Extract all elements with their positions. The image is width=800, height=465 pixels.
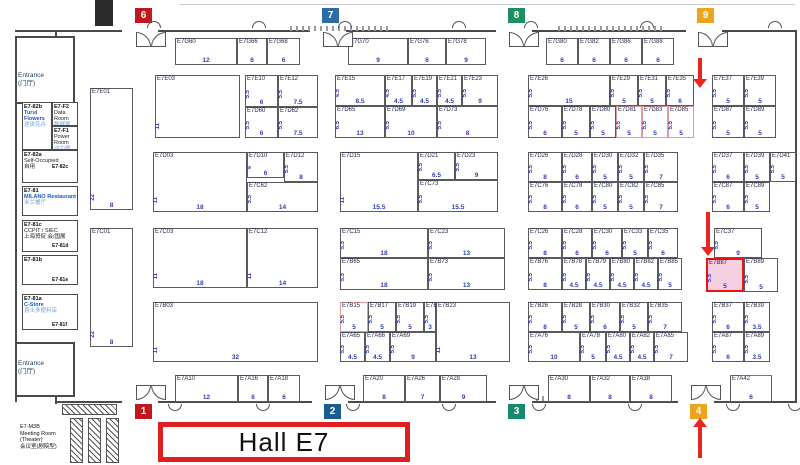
booth-E7B37[interactable]: E7B375.56 — [712, 302, 744, 332]
booth-width: 6 — [643, 57, 673, 64]
booth-E7G86[interactable]: E7G866 — [610, 38, 642, 65]
booth-E7E17[interactable]: E7E174.54.5 — [385, 75, 412, 106]
booth-E7C26[interactable]: E7C265.58 — [528, 228, 562, 258]
booth-E7D10[interactable]: E7D1046 — [247, 152, 284, 178]
booth-width: 12 — [176, 394, 237, 401]
booth-E7C82[interactable]: E7C825.55 — [618, 182, 644, 212]
booth-width: 5 — [745, 130, 775, 137]
theater-seating — [88, 418, 101, 463]
booth-depth: 5.5 — [246, 121, 251, 129]
booth-E7C12[interactable]: E7C121114 — [247, 228, 318, 288]
booth-width: 8 — [438, 130, 497, 137]
booth-width: 8 — [529, 204, 561, 211]
outer-building-line — [180, 4, 795, 5]
gate-door-icon — [713, 32, 728, 47]
booth-E7B89[interactable]: E7B895.55 — [744, 258, 778, 292]
booth-depth: 5.5 — [529, 195, 534, 203]
booth-width: 5 — [617, 130, 641, 137]
booth-E7G60[interactable]: E7G6012 — [175, 38, 237, 65]
booth-id: E7E01 — [92, 89, 110, 95]
booth-depth: 5.5 — [713, 89, 718, 97]
booth-depth: 5.5 — [279, 90, 284, 98]
booth-width: 8 — [591, 394, 629, 401]
booth-E7A76[interactable]: E7A765.510 — [528, 332, 580, 362]
booth-E7A89[interactable]: E7A895.53.5 — [744, 332, 770, 362]
booth-E7A10[interactable]: E7A1012 — [175, 375, 238, 402]
room-label: Data Room — [54, 110, 76, 122]
booth-E7C80[interactable]: E7C805.55 — [592, 182, 618, 212]
booth-E7E26[interactable]: E7E265.515 — [528, 75, 610, 106]
booth-width: 15.5 — [419, 204, 497, 211]
booth-id: E7C62 — [249, 183, 267, 189]
booth-E7C28[interactable]: E7C285.56 — [562, 228, 592, 258]
booth-width: 5 — [639, 98, 665, 105]
booth-width: 3.5 — [745, 324, 769, 331]
booth-E7A78[interactable]: E7A785.55 — [580, 332, 606, 362]
booth-E7B78[interactable]: E7B785.54.5 — [562, 258, 586, 290]
booth-E7D69[interactable]: E7D695.510 — [385, 106, 437, 138]
gate-door-icon — [151, 32, 166, 47]
booth-id: E7D41 — [772, 153, 790, 159]
room-e7-81: E7-81MILANO Restaurant米兰餐厅 — [22, 186, 78, 216]
booth-width: 4.5 — [611, 282, 633, 289]
booth-depth: 5.5 — [529, 89, 534, 97]
booth-depth: 5.5 — [529, 345, 534, 353]
booth-E7B23[interactable]: E7B231113 — [436, 302, 510, 362]
booth-width: 6 — [246, 99, 277, 106]
booth-E7D65[interactable]: E7D656.513 — [335, 106, 385, 138]
booth-E7C78[interactable]: E7C785.56 — [562, 182, 592, 212]
booth-id: E7C33 — [624, 229, 642, 235]
booth-width: 6 — [529, 130, 561, 137]
booth-E7B32[interactable]: E7B325.55 — [620, 302, 648, 332]
booth-depth: 5.5 — [529, 315, 534, 323]
booth-width: 18 — [154, 280, 246, 287]
booth-width: 6 — [547, 57, 577, 64]
meeting-room-label: E7-M3BMeeting Room(Theater)会议室(剧院型) — [20, 424, 57, 450]
booth-id: E7D81 — [618, 107, 636, 113]
booth-width: 18 — [341, 282, 427, 289]
arrow-head — [693, 418, 707, 427]
booth-id: E7C73 — [420, 181, 438, 187]
booth-E7C03[interactable]: E7C031118 — [153, 228, 247, 288]
booth-E7A85[interactable]: E7A855.57 — [654, 332, 688, 362]
booth-E7C30[interactable]: E7C305.56 — [592, 228, 622, 258]
booth-depth: 5.5 — [659, 273, 664, 281]
booth-depth: 5.5 — [581, 345, 586, 353]
booth-E7A38[interactable]: E7A388 — [630, 375, 672, 402]
booth-E7A82[interactable]: E7A825.54.5 — [630, 332, 654, 362]
booth-E7B21[interactable]: E7B215.53 — [424, 302, 436, 332]
booth-E7B19[interactable]: E7B195.55 — [396, 302, 424, 332]
booth-width: 6 — [246, 130, 277, 137]
booth-E7G88[interactable]: E7G886 — [642, 38, 674, 65]
booth-id: E7D37 — [714, 153, 732, 159]
booth-E7A28[interactable]: E7A289 — [440, 375, 487, 402]
booth-E7C37[interactable]: E7C375.59 — [714, 228, 762, 258]
booth-E7E03[interactable]: E7E0311 — [155, 75, 240, 138]
booth-width: 4.5 — [563, 282, 585, 289]
booth-id: E7A18 — [270, 376, 288, 382]
corner-wall — [15, 30, 57, 32]
booth-depth: 5.5 — [713, 315, 718, 323]
booth-id: E7E35 — [668, 76, 686, 82]
booth-width: 6 — [593, 250, 621, 257]
booth-id: E7B23 — [438, 303, 456, 309]
booth-width: 5 — [713, 98, 743, 105]
arrow-shaft — [706, 212, 710, 248]
booth-E7B87[interactable]: E7B875.55 — [706, 258, 744, 292]
room-label-e7-81e: E7-81e — [52, 277, 68, 283]
booth-E7C33[interactable]: E7C335.55 — [622, 228, 648, 258]
booth-depth: 5.5 — [279, 121, 284, 129]
booth-id: E7B65 — [342, 259, 360, 265]
booth-id: E7B73 — [430, 259, 448, 265]
booth-E7C76[interactable]: E7C765.58 — [528, 182, 562, 212]
booth-E7B26[interactable]: E7B265.58 — [528, 302, 562, 332]
top-wall — [55, 30, 122, 32]
booth-depth: 11 — [341, 197, 346, 203]
booth-E7B15[interactable]: E7B155.55 — [340, 302, 368, 332]
booth-width: 6 — [563, 250, 591, 257]
booth-E7G68[interactable]: E7G686 — [267, 38, 300, 65]
booth-width: 15 — [529, 98, 609, 105]
booth-depth: 22 — [91, 331, 96, 338]
booth-E7E10[interactable]: E7E105.56 — [245, 75, 278, 107]
booth-width: 9 — [349, 57, 407, 64]
booth-id: E7D73 — [439, 107, 457, 113]
booth-width: 6 — [713, 204, 743, 211]
booth-id: E7B28 — [564, 303, 582, 309]
booth-id: E7C01 — [92, 229, 110, 235]
booth-E7G70[interactable]: E7G709 — [348, 38, 408, 65]
booth-width: 10 — [386, 130, 436, 137]
booth-depth: 5.5 — [669, 121, 674, 129]
booth-E7D30[interactable]: E7D305.55 — [592, 152, 618, 182]
booth-E7C87[interactable]: E7C875.56 — [712, 182, 744, 212]
booth-E7B65[interactable]: E7B655.518 — [340, 258, 428, 290]
booth-E7D80[interactable]: E7D805.55 — [590, 106, 616, 138]
booth-E7C23[interactable]: E7C235.513 — [428, 228, 505, 258]
booth-E7D73[interactable]: E7D735.58 — [437, 106, 498, 138]
booth-depth: 5.5 — [591, 121, 596, 129]
top-wall — [722, 30, 797, 32]
booth-E7E15[interactable]: E7E154.58.5 — [335, 75, 385, 106]
booth-width: 5 — [593, 204, 617, 211]
booth-depth: 6.5 — [336, 121, 341, 129]
booth-depth: 5.5 — [285, 165, 290, 173]
booth-E7B76[interactable]: E7B765.58 — [528, 258, 562, 290]
booth-width: 8.5 — [336, 98, 384, 105]
booth-E7E39[interactable]: E7E395.55 — [744, 75, 776, 106]
room-label: 上海贸促 会/国展 — [24, 234, 76, 240]
booth-depth: 5.5 — [619, 195, 624, 203]
booth-width: 6 — [239, 394, 267, 401]
booth-E7D81[interactable]: E7D815.55 — [616, 106, 642, 138]
booth-width: 6 — [248, 170, 283, 177]
booth-E7A20[interactable]: E7A208 — [363, 375, 405, 402]
booth-E7D28[interactable]: E7D285.56 — [562, 152, 592, 182]
booth-E7C62[interactable]: E7C625.514 — [247, 182, 318, 212]
wall-block — [95, 0, 113, 26]
booth-width: 5 — [619, 174, 643, 181]
booth-width: 6.5 — [419, 172, 454, 179]
booth-width: 14 — [248, 280, 317, 287]
booth-width: 6 — [579, 57, 609, 64]
booth-E7D78[interactable]: E7D785.55 — [562, 106, 590, 138]
booth-E7A18[interactable]: E7A186 — [268, 375, 300, 402]
booth-E7G82[interactable]: E7G826 — [578, 38, 610, 65]
booth-E7A30[interactable]: E7A308 — [548, 375, 590, 402]
booth-E7B85[interactable]: E7B855.55 — [658, 258, 682, 290]
booth-id: E7A66 — [367, 333, 385, 339]
booth-E7C01[interactable]: E7C01228 — [90, 228, 133, 347]
booth-E7E23[interactable]: E7E235.59 — [462, 75, 498, 106]
door-arc-icon — [338, 21, 352, 28]
booth-E7B73[interactable]: E7B735.513 — [428, 258, 505, 290]
booth-width: 5 — [745, 284, 777, 291]
booth-E7G78[interactable]: E7G789 — [446, 38, 486, 65]
booth-depth: 5.5 — [639, 89, 644, 97]
booth-width: 4.5 — [635, 282, 657, 289]
booth-depth: 5.5 — [645, 165, 650, 173]
booth-depth: 5.5 — [623, 241, 628, 249]
booth-E7B28[interactable]: E7B285.55 — [562, 302, 590, 332]
booth-depth: 5.5 — [655, 345, 660, 353]
booth-depth: 5.5 — [611, 273, 616, 281]
gate-badge-1: 1 — [135, 404, 152, 419]
booth-id: E7C37 — [716, 229, 734, 235]
booth-width: 15.5 — [341, 204, 417, 211]
booth-E7A42[interactable]: E7A426 — [730, 375, 772, 402]
booth-depth: 5.5 — [708, 274, 713, 282]
booth-id: E7D28 — [564, 153, 582, 159]
booth-E7D21[interactable]: E7D215.56.5 — [418, 152, 455, 180]
booth-width: 4.5 — [631, 354, 653, 361]
booth-E7A65[interactable]: E7A655.54.5 — [340, 332, 365, 362]
booth-E7D83[interactable]: E7D835.55 — [642, 106, 668, 138]
door-arc-icon — [256, 404, 270, 411]
gate-door-icon — [151, 385, 166, 400]
booth-E7E37[interactable]: E7E375.55 — [712, 75, 744, 106]
booth-depth: 5.5 — [649, 241, 654, 249]
booth-E7C15[interactable]: E7C155.518 — [340, 228, 428, 258]
booth-E7E29[interactable]: E7E295.55 — [610, 75, 638, 106]
booth-E7B80[interactable]: E7B805.54.5 — [610, 258, 634, 290]
booth-E7D85[interactable]: E7D855.55 — [668, 106, 694, 138]
booth-E7C85[interactable]: E7C855.57 — [644, 182, 678, 212]
booth-depth: 5.5 — [649, 315, 654, 323]
room-e7-f1: E7-F1Power Room动力房 — [52, 126, 78, 150]
booth-depth: 5.5 — [591, 315, 596, 323]
hall-title: Hall E7 — [158, 422, 410, 462]
booth-id: E7E26 — [530, 76, 548, 82]
booth-width: 4.5 — [587, 282, 609, 289]
booth-E7E21[interactable]: E7E215.54.5 — [437, 75, 462, 106]
booth-id: E7D39 — [746, 153, 764, 159]
gate-door-icon — [340, 385, 355, 400]
booth-id: E7E37 — [714, 76, 732, 82]
booth-width: 7.5 — [279, 130, 317, 137]
booth-id: E7E15 — [337, 76, 355, 82]
booth-id: E7D80 — [592, 107, 610, 113]
booth-E7D41[interactable]: E7D415.55 — [770, 152, 796, 182]
booth-E7D12[interactable]: E7D125.58 — [284, 152, 318, 182]
booth-id: E7D60 — [247, 108, 265, 114]
booth-depth: 5.5 — [419, 163, 424, 171]
booth-id: E7C12 — [249, 229, 267, 235]
booth-id: E7G68 — [269, 39, 288, 45]
booth-width: 5 — [621, 324, 647, 331]
booth-id: E7D23 — [457, 153, 475, 159]
booth-E7C89[interactable]: E7C895.55 — [744, 182, 770, 212]
booth-E7D39[interactable]: E7D395.55 — [744, 152, 770, 182]
booth-depth: 5.5 — [391, 345, 396, 353]
gate-door-icon — [136, 385, 151, 400]
booth-E7C73[interactable]: E7C735.515.5 — [418, 180, 498, 212]
booth-id: E7B26 — [530, 303, 548, 309]
room-label: 米兰餐厅 — [24, 200, 76, 206]
gate-door-icon — [706, 385, 721, 400]
booth-id: E7D12 — [286, 153, 304, 159]
booth-id: E7E17 — [387, 76, 405, 82]
booth-E7D87[interactable]: E7D875.55 — [712, 106, 744, 138]
booth-id: E7C89 — [746, 183, 764, 189]
booth-id: E7G82 — [580, 39, 599, 45]
booth-depth: 11 — [248, 273, 253, 279]
booth-width: 6 — [563, 204, 591, 211]
booth-E7D26[interactable]: E7D265.58 — [528, 152, 562, 182]
booth-id: E7B87 — [709, 260, 727, 266]
booth-id: E7A87 — [714, 333, 732, 339]
booth-E7G80[interactable]: E7G806 — [546, 38, 578, 65]
room-e7-81b: E7-81b — [22, 255, 78, 285]
booth-E7A26[interactable]: E7A267 — [405, 375, 440, 402]
booth-width: 8 — [91, 339, 132, 346]
booth-depth: 5.5 — [607, 345, 612, 353]
booth-id: E7A32 — [592, 376, 610, 382]
booth-depth: 5.5 — [341, 273, 346, 281]
booth-id: E7D89 — [746, 107, 764, 113]
door-arc-icon — [788, 404, 800, 411]
booth-width: 5 — [397, 324, 423, 331]
booth-width: 6 — [731, 394, 771, 401]
booth-E7C35[interactable]: E7C355.56 — [648, 228, 678, 258]
booth-depth: 5.5 — [715, 241, 720, 249]
booth-depth: 5.5 — [593, 165, 598, 173]
booth-width: 5 — [745, 98, 775, 105]
booth-E7B79[interactable]: E7B795.54.5 — [586, 258, 610, 290]
booth-id: E7A82 — [632, 333, 650, 339]
booth-E7A80[interactable]: E7A805.54.5 — [606, 332, 630, 362]
booth-width: 6 — [268, 57, 299, 64]
booth-E7D37[interactable]: E7D375.56 — [712, 152, 744, 182]
booth-E7B17[interactable]: E7B175.55 — [368, 302, 396, 332]
booth-E7A32[interactable]: E7A328 — [590, 375, 630, 402]
booth-E7E35[interactable]: E7E355.56 — [666, 75, 694, 106]
booth-id: E7G66 — [239, 39, 258, 45]
booth-id: E7E10 — [247, 76, 265, 82]
booth-id: E7B15 — [342, 303, 360, 309]
booth-E7E19[interactable]: E7E195.54.5 — [412, 75, 437, 106]
booth-E7B35[interactable]: E7B355.57 — [648, 302, 682, 332]
booth-id: E7C78 — [564, 183, 582, 189]
booth-E7D03[interactable]: E7D031118 — [153, 152, 247, 212]
gate-door-icon — [136, 32, 151, 47]
meeting-room-line: 会议室(剧院型) — [20, 444, 57, 451]
booth-E7G66[interactable]: E7G666 — [237, 38, 267, 65]
booth-width: 9 — [456, 172, 497, 179]
booth-E7B30[interactable]: E7B305.56 — [590, 302, 620, 332]
booth-E7D76[interactable]: E7D765.56 — [528, 106, 562, 138]
booth-width: 14 — [248, 204, 317, 211]
booth-id: E7A65 — [342, 333, 360, 339]
room-label: 自用 — [24, 164, 76, 170]
booth-E7A69[interactable]: E7A695.59 — [390, 332, 436, 362]
booth-width: 8 — [549, 394, 589, 401]
booth-width: 5 — [619, 204, 643, 211]
booth-depth: 5.5 — [621, 315, 626, 323]
booth-E7D60[interactable]: E7D605.56 — [245, 107, 278, 138]
booth-E7A87[interactable]: E7A875.56 — [712, 332, 744, 362]
booth-id: E7B17 — [370, 303, 388, 309]
booth-id: E7B37 — [714, 303, 732, 309]
gate-door-icon — [325, 385, 340, 400]
booth-depth: 5.5 — [713, 195, 718, 203]
booth-depth: 5.5 — [745, 165, 750, 173]
door-arc-icon — [532, 404, 546, 411]
booth-id: E7D32 — [620, 153, 638, 159]
booth-E7D32[interactable]: E7D325.55 — [618, 152, 644, 182]
booth-id: E7A10 — [177, 376, 195, 382]
booth-depth: 4 — [248, 166, 253, 169]
booth-id: E7B19 — [398, 303, 416, 309]
booth-E7A66[interactable]: E7A665.54.5 — [365, 332, 390, 362]
booth-width: 8 — [529, 174, 561, 181]
booth-E7B82[interactable]: E7B825.54.5 — [634, 258, 658, 290]
floor-plan-hall-e7: Hall E7 E7G6012E7G666E7G686E7G709E7G766E… — [0, 0, 800, 465]
gate-door-icon — [524, 385, 539, 400]
theater-seating — [70, 418, 83, 463]
booth-id: E7G76 — [410, 39, 429, 45]
booth-E7D62[interactable]: E7D625.57.5 — [278, 107, 318, 138]
booth-E7E31[interactable]: E7E315.55 — [638, 75, 666, 106]
booth-E7D35[interactable]: E7D355.57 — [644, 152, 678, 182]
booth-width: 9 — [715, 250, 761, 257]
booth-E7D23[interactable]: E7D235.59 — [455, 152, 498, 180]
booth-E7D15[interactable]: E7D151115.5 — [340, 152, 418, 212]
arrow-shaft — [698, 58, 702, 80]
gate-door-icon — [323, 32, 338, 47]
booth-E7D89[interactable]: E7D895.55 — [744, 106, 776, 138]
booth-depth: 5.5 — [438, 121, 443, 129]
booth-id: E7D85 — [670, 107, 688, 113]
booth-id: E7D69 — [387, 107, 405, 113]
booth-E7B03[interactable]: E7B031132 — [153, 302, 318, 362]
booth-E7A16[interactable]: E7A166 — [238, 375, 268, 402]
booth-E7G76[interactable]: E7G766 — [408, 38, 446, 65]
booth-width: 8 — [631, 394, 671, 401]
booth-depth: 5.5 — [429, 273, 434, 281]
booth-E7E01[interactable]: E7E01228 — [90, 88, 133, 210]
booth-id: E7C82 — [620, 183, 638, 189]
booth-E7B39[interactable]: E7B395.53.5 — [744, 302, 770, 332]
booth-id: E7E03 — [157, 76, 175, 82]
booth-E7E12[interactable]: E7E125.57.5 — [278, 75, 318, 107]
booth-width: 5 — [713, 130, 743, 137]
room-label: E7-81b — [24, 257, 76, 263]
booth-width: 3 — [425, 324, 435, 331]
